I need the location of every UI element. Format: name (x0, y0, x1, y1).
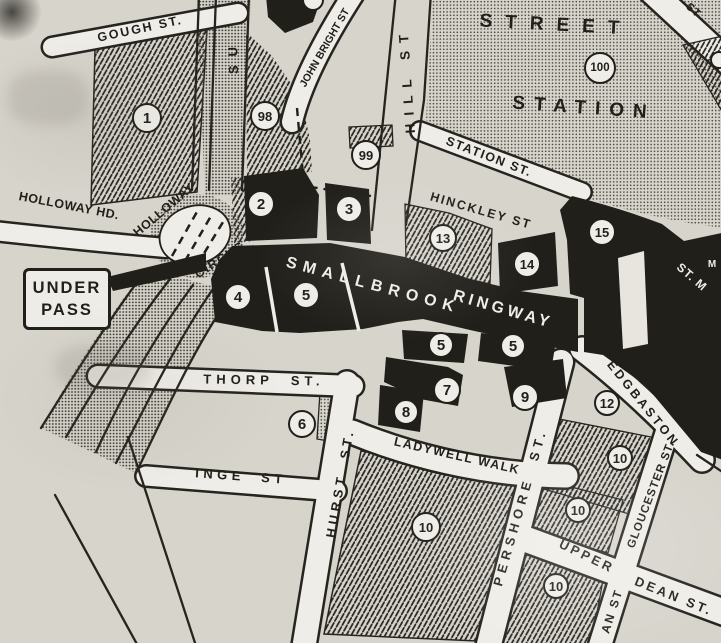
circled-number-100: 100 (584, 52, 616, 84)
circled-number-7: 7 (433, 376, 461, 404)
circled-number-12: 12 (594, 390, 620, 416)
street-label-st-topright: ST (683, 2, 702, 21)
circled-number-3: 3 (335, 195, 363, 223)
street-label-ringway: RINGWAY (451, 288, 554, 332)
street-label-hill-st: HILL ST (397, 26, 418, 133)
circled-number-10: 10 (543, 573, 569, 599)
circled-number-4: 4 (224, 283, 252, 311)
partial-circle (710, 51, 721, 69)
street-label-gough-st: GOUGH ST. (96, 14, 183, 44)
circled-number-10: 10 (565, 497, 591, 523)
circled-number-10: 10 (411, 512, 441, 542)
circled-number-1: 1 (132, 103, 162, 133)
street-label-an-st-partial: AN ST (599, 587, 625, 634)
circled-number-10: 10 (607, 445, 633, 471)
circled-number-15: 15 (588, 218, 616, 246)
street-label-dean-st: DEAN ST. (633, 574, 715, 617)
street-label-station: STATION (512, 94, 657, 123)
street-label-suffolk-partial: SU (226, 38, 240, 74)
circled-number-98: 98 (250, 101, 280, 131)
street-label-holloway-hd: HOLLOWAY HD. (18, 190, 120, 222)
map-canvas: UNDER PASS GOUGH ST.HOLLOWAY HD.HOLLOWAY… (0, 0, 721, 643)
street-label-upper: UPPER (557, 537, 616, 575)
map-annotation-layer: UNDER PASS GOUGH ST.HOLLOWAY HD.HOLLOWAY… (0, 0, 721, 643)
street-label-ladywell-walk: LADYWELL WALK (393, 435, 521, 476)
circled-number-2: 2 (247, 190, 275, 218)
circled-number-5: 5 (292, 281, 320, 309)
underpass-sign: UNDER PASS (23, 268, 111, 330)
circled-number-99: 99 (351, 140, 381, 170)
underpass-sign-line2: PASS (41, 299, 93, 321)
street-label-street: STREET (479, 12, 633, 39)
circled-number-13: 13 (429, 224, 457, 252)
st-martins-symbol: M (702, 254, 721, 274)
underpass-sign-line1: UNDER (33, 277, 102, 299)
circled-number-6: 6 (288, 410, 316, 438)
street-label-circus: CIRCUS (193, 239, 248, 280)
street-label-inge-st: INGE ST (195, 466, 287, 485)
circled-number-14: 14 (513, 250, 541, 278)
circled-number-5: 5 (500, 333, 526, 359)
partial-circle (302, 0, 324, 11)
street-label-gloucester-st: GLOUCESTER ST. (626, 440, 677, 550)
street-label-thorp-st: THORP ST. (203, 372, 324, 387)
circled-number-9: 9 (511, 383, 539, 411)
circled-number-5: 5 (428, 332, 454, 358)
street-label-john-bright-st: JOHN BRIGHT ST (298, 7, 351, 89)
street-label-hurst-st: HURST ST. (324, 427, 356, 538)
street-label-station-st: STATION ST. (444, 135, 533, 179)
street-label-holloway: HOLLOWAY (131, 181, 197, 239)
street-label-pershore-st: PERSHORE ST. (491, 426, 549, 587)
circled-number-8: 8 (393, 399, 419, 425)
